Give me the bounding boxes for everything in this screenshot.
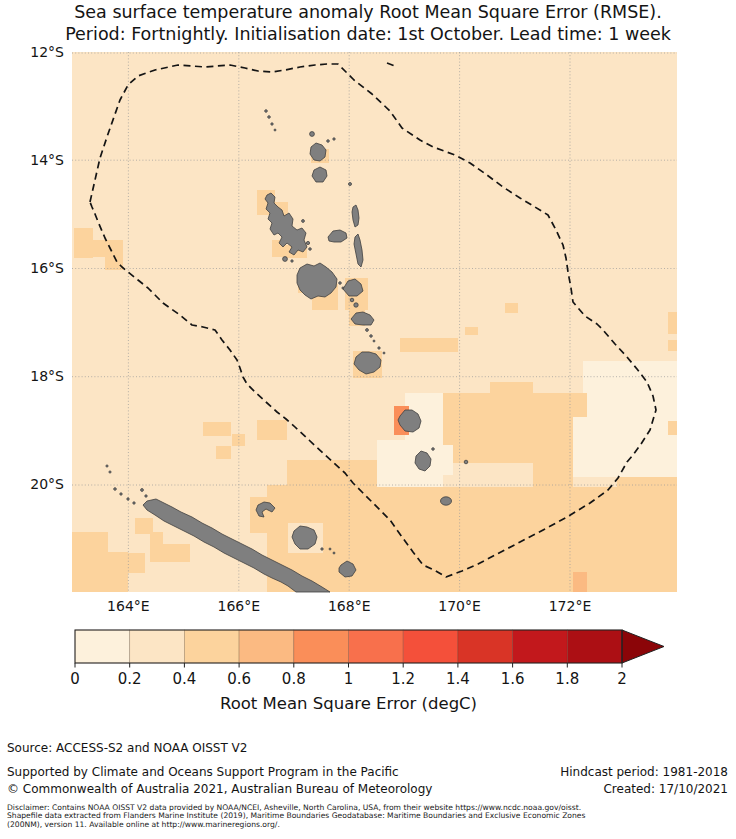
colorbar-extend-arrow (622, 630, 664, 663)
colorbar-segment (75, 630, 130, 663)
colorbar-tick-label: 0.2 (118, 670, 142, 688)
disclaimer-line: (200NM), version 11. Available online at… (7, 821, 585, 829)
colorbar-tick-label: 1.8 (555, 670, 579, 688)
colorbar-label: Root Mean Square Error (degC) (220, 694, 477, 713)
map-figure: 12°S14°S16°S18°S20°S 164°E166°E168°E170°… (0, 0, 736, 736)
colorbar-segment (184, 630, 239, 663)
colorbar-segment (513, 630, 568, 663)
colorbar-segment (349, 630, 404, 663)
disclaimer-text: Disclaimer: Contains NOAA OISST V2 data … (7, 804, 585, 829)
lat-tick-label: 16°S (30, 260, 64, 276)
rmse-patch-midhigh-south (573, 572, 587, 592)
source-text: Source: ACCESS-S2 and NOAA OISST V2 (7, 741, 247, 755)
colorbar-segment (403, 630, 458, 663)
longitude-axis-labels: 164°E166°E168°E170°E172°E (107, 598, 591, 614)
rmse-patch-pale-notch (443, 445, 453, 475)
lat-tick-label: 18°S (30, 368, 64, 384)
lon-tick-label: 168°E (328, 598, 371, 614)
colorbar-segment (130, 630, 185, 663)
colorbar-tick-label: 0.4 (172, 670, 196, 688)
created-date-text: Created: 17/10/2021 (603, 782, 728, 796)
lon-tick-label: 172°E (549, 598, 592, 614)
lopevi-island (354, 303, 358, 307)
copyright-text: © Commonwealth of Australia 2021, Austra… (7, 782, 432, 796)
colorbar-tick-label: 0.6 (227, 670, 251, 688)
lon-tick-label: 164°E (107, 598, 150, 614)
lon-tick-label: 170°E (438, 598, 481, 614)
colorbar-segment (294, 630, 349, 663)
colorbar-tick-label: 1 (344, 670, 354, 688)
colorbar-segments (75, 630, 622, 663)
malo-island (283, 257, 288, 262)
colorbar-ticks: 00.20.40.60.811.21.41.61.82 (70, 663, 627, 688)
colorbar-tick-label: 1.2 (391, 670, 415, 688)
lat-tick-label: 12°S (30, 44, 64, 60)
colorbar-tick-label: 1.4 (446, 670, 470, 688)
lon-tick-label: 166°E (218, 598, 261, 614)
aneityum-island (441, 497, 452, 505)
colorbar-segment (567, 630, 622, 663)
colorbar-segment (239, 630, 294, 663)
futuna-island (464, 460, 468, 464)
colorbar-tick-label: 1.6 (501, 670, 525, 688)
colorbar-tick-label: 0 (70, 670, 80, 688)
lat-tick-label: 14°S (30, 152, 64, 168)
latitude-axis-labels: 12°S14°S16°S18°S20°S (30, 44, 64, 492)
lat-tick-label: 20°S (30, 476, 64, 492)
santo-islet (302, 220, 305, 223)
colorbar-tick-label: 0.8 (282, 670, 306, 688)
colorbar-segment (458, 630, 513, 663)
tiga-island (321, 548, 323, 550)
supported-text: Supported by Climate and Oceans Support … (7, 765, 399, 779)
paama-island (350, 298, 354, 302)
hindcast-period-text: Hindcast period: 1981-2018 (560, 765, 728, 779)
aniwa-island (432, 448, 435, 451)
colorbar-tick-label: 2 (617, 670, 627, 688)
